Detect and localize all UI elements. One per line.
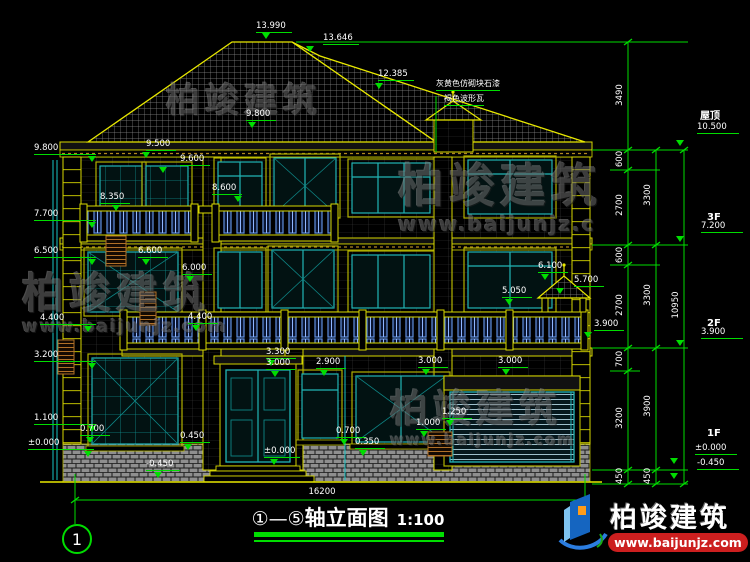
elevation-label: 3.200 [34, 351, 96, 362]
elevation-marker-triangle [142, 152, 150, 158]
elevation-marker-triangle [159, 167, 167, 173]
elevation-marker-triangle [270, 459, 278, 465]
elevation-label: 12.385 [378, 70, 414, 81]
material-note: 褐色波形瓦 [444, 93, 484, 106]
elevation-marker-triangle [88, 363, 96, 369]
elevation-label: 6.000 [182, 264, 212, 275]
elevation-marker-triangle [271, 371, 279, 377]
dimension-text: 3900 [643, 395, 653, 417]
floor-elevation: ±0.000 [695, 444, 737, 455]
watermark: 柏竣建筑www.baijunjz.c [398, 160, 602, 236]
floor-elevation: 3.900 [701, 328, 743, 339]
watermark-text: 柏竣建筑 [398, 159, 602, 213]
elevation-marker-triangle [340, 439, 348, 445]
elevation-marker-triangle [154, 472, 162, 478]
elevation-label: 5.700 [574, 276, 604, 287]
elevation-marker-triangle [262, 33, 270, 39]
elevation-label: 13.646 [323, 34, 359, 45]
dimension-text: 700 [615, 351, 625, 367]
elevation-label: 2.900 [316, 358, 346, 369]
elevation-label: 4.400 [188, 313, 218, 324]
elevation-marker-triangle [88, 156, 96, 162]
floor-label: 屋顶 [700, 107, 720, 122]
elevation-label: 0.350 [355, 438, 385, 449]
dimension-text: 600 [615, 247, 625, 263]
watermark-url: www.baijunjz.com [390, 432, 575, 449]
floor-label: 1F [707, 428, 721, 439]
dimension-text: 450 [615, 468, 625, 484]
elevation-label: 8.350 [100, 193, 130, 204]
dimension-text: 600 [615, 151, 625, 167]
elevation-label: -0.450 [146, 460, 180, 471]
elevation-marker-triangle [192, 325, 200, 331]
elevation-marker-triangle [306, 46, 314, 52]
window [348, 251, 434, 312]
elevation-label: 9.500 [146, 140, 176, 151]
title-axis-range: ①—⑤ [252, 508, 305, 530]
elevation-label: 1.250 [442, 408, 472, 419]
title-underline-thick [254, 532, 444, 537]
elevation-marker-triangle [584, 332, 592, 338]
elevation-marker-triangle [375, 83, 383, 89]
elevation-marker-triangle [676, 340, 684, 346]
elevation-marker-triangle [84, 326, 92, 332]
watermark-text: 柏竣建筑 [166, 81, 322, 121]
elevation-label: 3.000 [498, 357, 528, 368]
brand-logo-icon [556, 490, 608, 556]
elevation-marker-triangle [320, 370, 328, 376]
elevation-label: 8.600 [212, 184, 242, 195]
roof-main [88, 42, 585, 142]
title-scale: 1:100 [397, 511, 445, 529]
dimension-text: 3490 [615, 84, 625, 106]
floor-elevation: 10.500 [697, 123, 739, 134]
title-underline-thin [254, 540, 444, 542]
elevation-marker-triangle [670, 458, 678, 464]
elevation-label: 6.500 [34, 247, 96, 258]
floor-elevation: 7.200 [701, 222, 743, 233]
watermark: 柏竣建筑 [166, 82, 322, 121]
elevation-label: 9.600 [180, 155, 210, 166]
elevation-marker-triangle [422, 369, 430, 375]
watermark-url: www.baijunjz.c [398, 213, 602, 236]
elevation-label: 1.000 [416, 419, 446, 430]
elevation-marker-triangle [234, 196, 242, 202]
elevation-marker-triangle [676, 140, 684, 146]
dimension-text: 16200 [308, 487, 335, 497]
brand-logo: 柏竣建筑 www.baijunjz.com [556, 490, 750, 560]
floor-elevation: -0.450 [697, 459, 739, 470]
drawing-title: ①—⑤轴立面图1:100 [248, 502, 448, 532]
elevation-marker-triangle [556, 288, 564, 294]
elevation-marker-triangle [676, 236, 684, 242]
elevation-label: ±0.000 [28, 439, 94, 450]
elevation-label: 6.100 [538, 262, 568, 273]
elevation-label: 5.050 [502, 287, 532, 298]
elevation-marker-triangle [420, 431, 428, 437]
elevation-label: 3.000 [266, 359, 296, 370]
elevation-marker-triangle [505, 299, 513, 305]
elevation-marker-triangle [86, 437, 94, 443]
cad-elevation-canvas: 柏竣建筑柏竣建筑www.baijunjz.com柏竣建筑www.baijunjz… [0, 0, 750, 562]
elevation-label: 9.800 [246, 110, 276, 121]
elevation-marker-triangle [112, 205, 120, 211]
elevation-label: 4.400 [40, 314, 96, 325]
elevation-marker-triangle [248, 122, 256, 128]
dimension-text: 3300 [643, 184, 653, 206]
elevation-label: ±0.000 [264, 447, 300, 458]
dimension-text: 10950 [671, 291, 681, 318]
elevation-marker-triangle [670, 473, 678, 479]
dimension-text: 450 [643, 468, 653, 484]
elevation-label: 13.990 [256, 22, 292, 33]
elevation-marker-triangle [186, 276, 194, 282]
brand-name: 柏竣建筑 [610, 496, 730, 535]
brand-url-badge: www.baijunjz.com [608, 533, 748, 552]
dimension-text: 3200 [615, 407, 625, 429]
title-name: 轴立面图 [305, 506, 389, 530]
elevation-marker-triangle [142, 259, 150, 265]
elevation-label: 0.700 [80, 425, 110, 436]
window [268, 246, 338, 312]
elevation-label: 3.000 [418, 357, 448, 368]
elevation-marker-triangle [502, 369, 510, 375]
dimension-text: 2700 [615, 194, 625, 216]
elevation-label: 6.600 [138, 247, 168, 258]
elevation-marker-triangle [446, 420, 454, 426]
elevation-label: 3.900 [594, 320, 624, 331]
elevation-label: 0.450 [180, 432, 210, 443]
watermark-text: 柏竣建筑 [22, 269, 210, 318]
axis-bubble-1: 1 [62, 524, 92, 554]
elevation-marker-triangle [541, 274, 549, 280]
elevation-marker-triangle [84, 451, 92, 457]
dimension-text: 3300 [643, 284, 653, 306]
elevation-marker-triangle [88, 222, 96, 228]
elevation-label: 7.700 [34, 210, 96, 221]
material-note: 灰黄色仿砌块石漆 [436, 78, 500, 91]
elevation-label: 9.800 [34, 144, 96, 155]
elevation-marker-triangle [359, 450, 367, 456]
elevation-marker-triangle [184, 444, 192, 450]
dimension-text: 2700 [615, 294, 625, 316]
elevation-marker-triangle [88, 259, 96, 265]
